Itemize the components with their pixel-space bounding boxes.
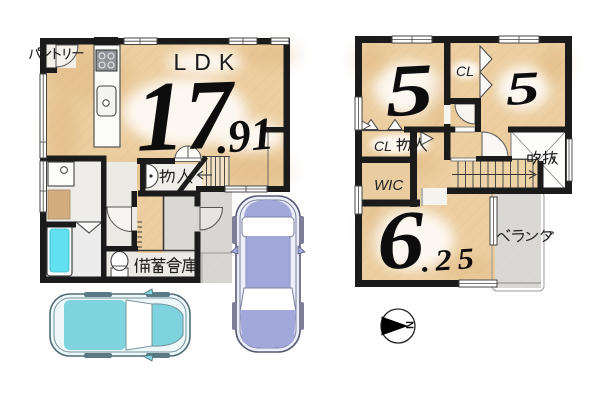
svg-text:5: 5 bbox=[383, 48, 436, 133]
svg-text:5: 5 bbox=[504, 61, 541, 115]
svg-text:.91: .91 bbox=[214, 107, 276, 163]
svg-text:N: N bbox=[403, 321, 415, 329]
svg-text:.25: .25 bbox=[420, 241, 481, 278]
svg-text:WIC: WIC bbox=[374, 177, 403, 194]
svg-text:CL: CL bbox=[374, 138, 392, 154]
svg-text:CL: CL bbox=[456, 63, 474, 79]
svg-text:6: 6 bbox=[375, 194, 428, 288]
